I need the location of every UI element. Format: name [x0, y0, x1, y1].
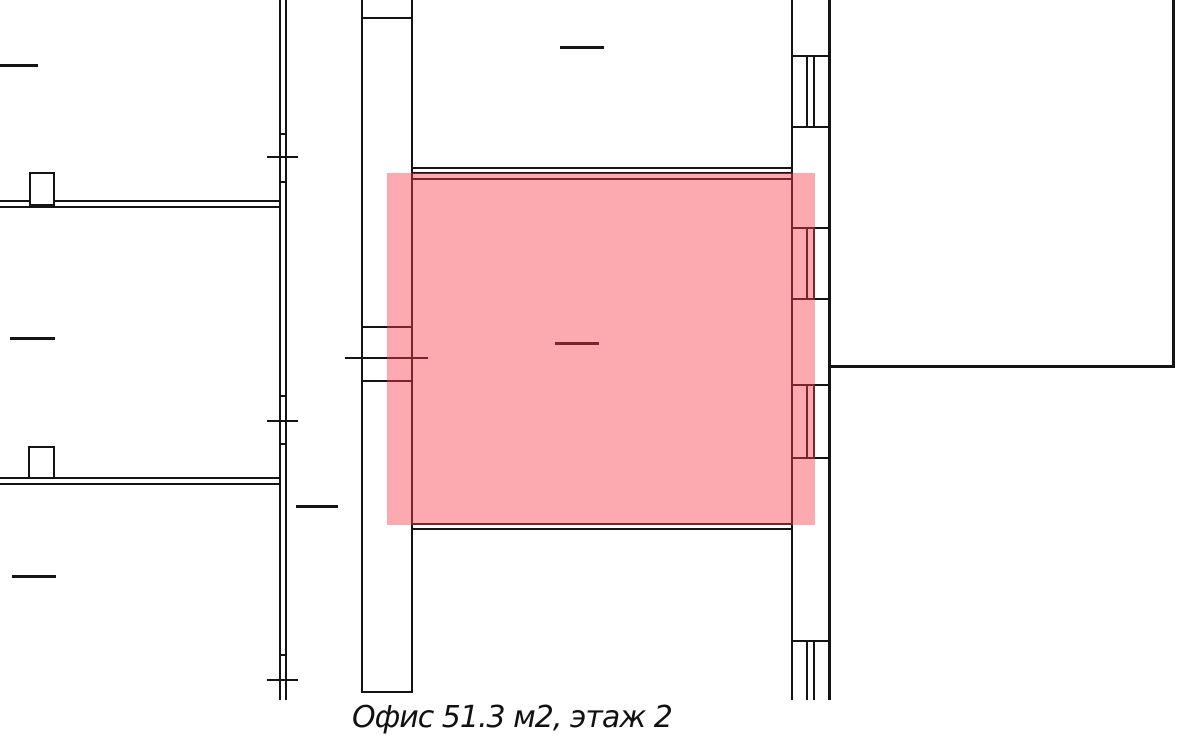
corridor-wall-left — [361, 0, 363, 693]
floorplan-caption: Офис 51.3 м2, этаж 2 — [352, 700, 672, 735]
left-wall-notch — [279, 181, 287, 183]
left-wall-tick — [267, 420, 298, 422]
wall-pillar — [28, 446, 55, 479]
window-frame-line — [806, 55, 808, 128]
room-label-dash — [296, 505, 338, 508]
highlighted-office-room[interactable] — [387, 173, 815, 525]
window-cap — [791, 126, 831, 128]
office-bottom-wall-outer — [411, 528, 793, 530]
room-label-dash — [10, 337, 55, 340]
left-room-divider2-line-b — [0, 483, 281, 485]
left-outer-wall-line-a — [279, 0, 281, 700]
room-label-dash — [0, 64, 38, 67]
left-wall-notch — [279, 133, 287, 135]
room-label-dash — [560, 46, 604, 49]
right-wall-outer — [828, 0, 831, 700]
left-wall-tick — [267, 679, 298, 681]
right-room-right-wall — [1172, 0, 1175, 368]
left-room-divider-line-b — [0, 206, 281, 208]
corridor-bottom-cap — [361, 691, 413, 693]
room-label-dash — [12, 575, 56, 578]
floorplan-canvas: Офис 51.3 м2, этаж 2 — [0, 0, 1200, 745]
left-wall-notch — [279, 443, 287, 445]
left-wall-notch — [279, 395, 287, 397]
wall-pillar — [29, 172, 55, 206]
left-outer-wall-line-b — [285, 0, 287, 700]
window-frame-line — [813, 55, 815, 128]
window-frame-line — [813, 640, 815, 700]
right-room-bottom-wall — [828, 365, 1175, 368]
window-frame-line — [806, 640, 808, 700]
left-wall-tick — [267, 156, 298, 158]
upper-room-floor-line-a — [411, 167, 793, 169]
left-wall-notch — [279, 654, 287, 656]
window-cap — [791, 55, 831, 57]
window-cap — [791, 640, 831, 642]
corridor-top-cap — [361, 17, 413, 19]
